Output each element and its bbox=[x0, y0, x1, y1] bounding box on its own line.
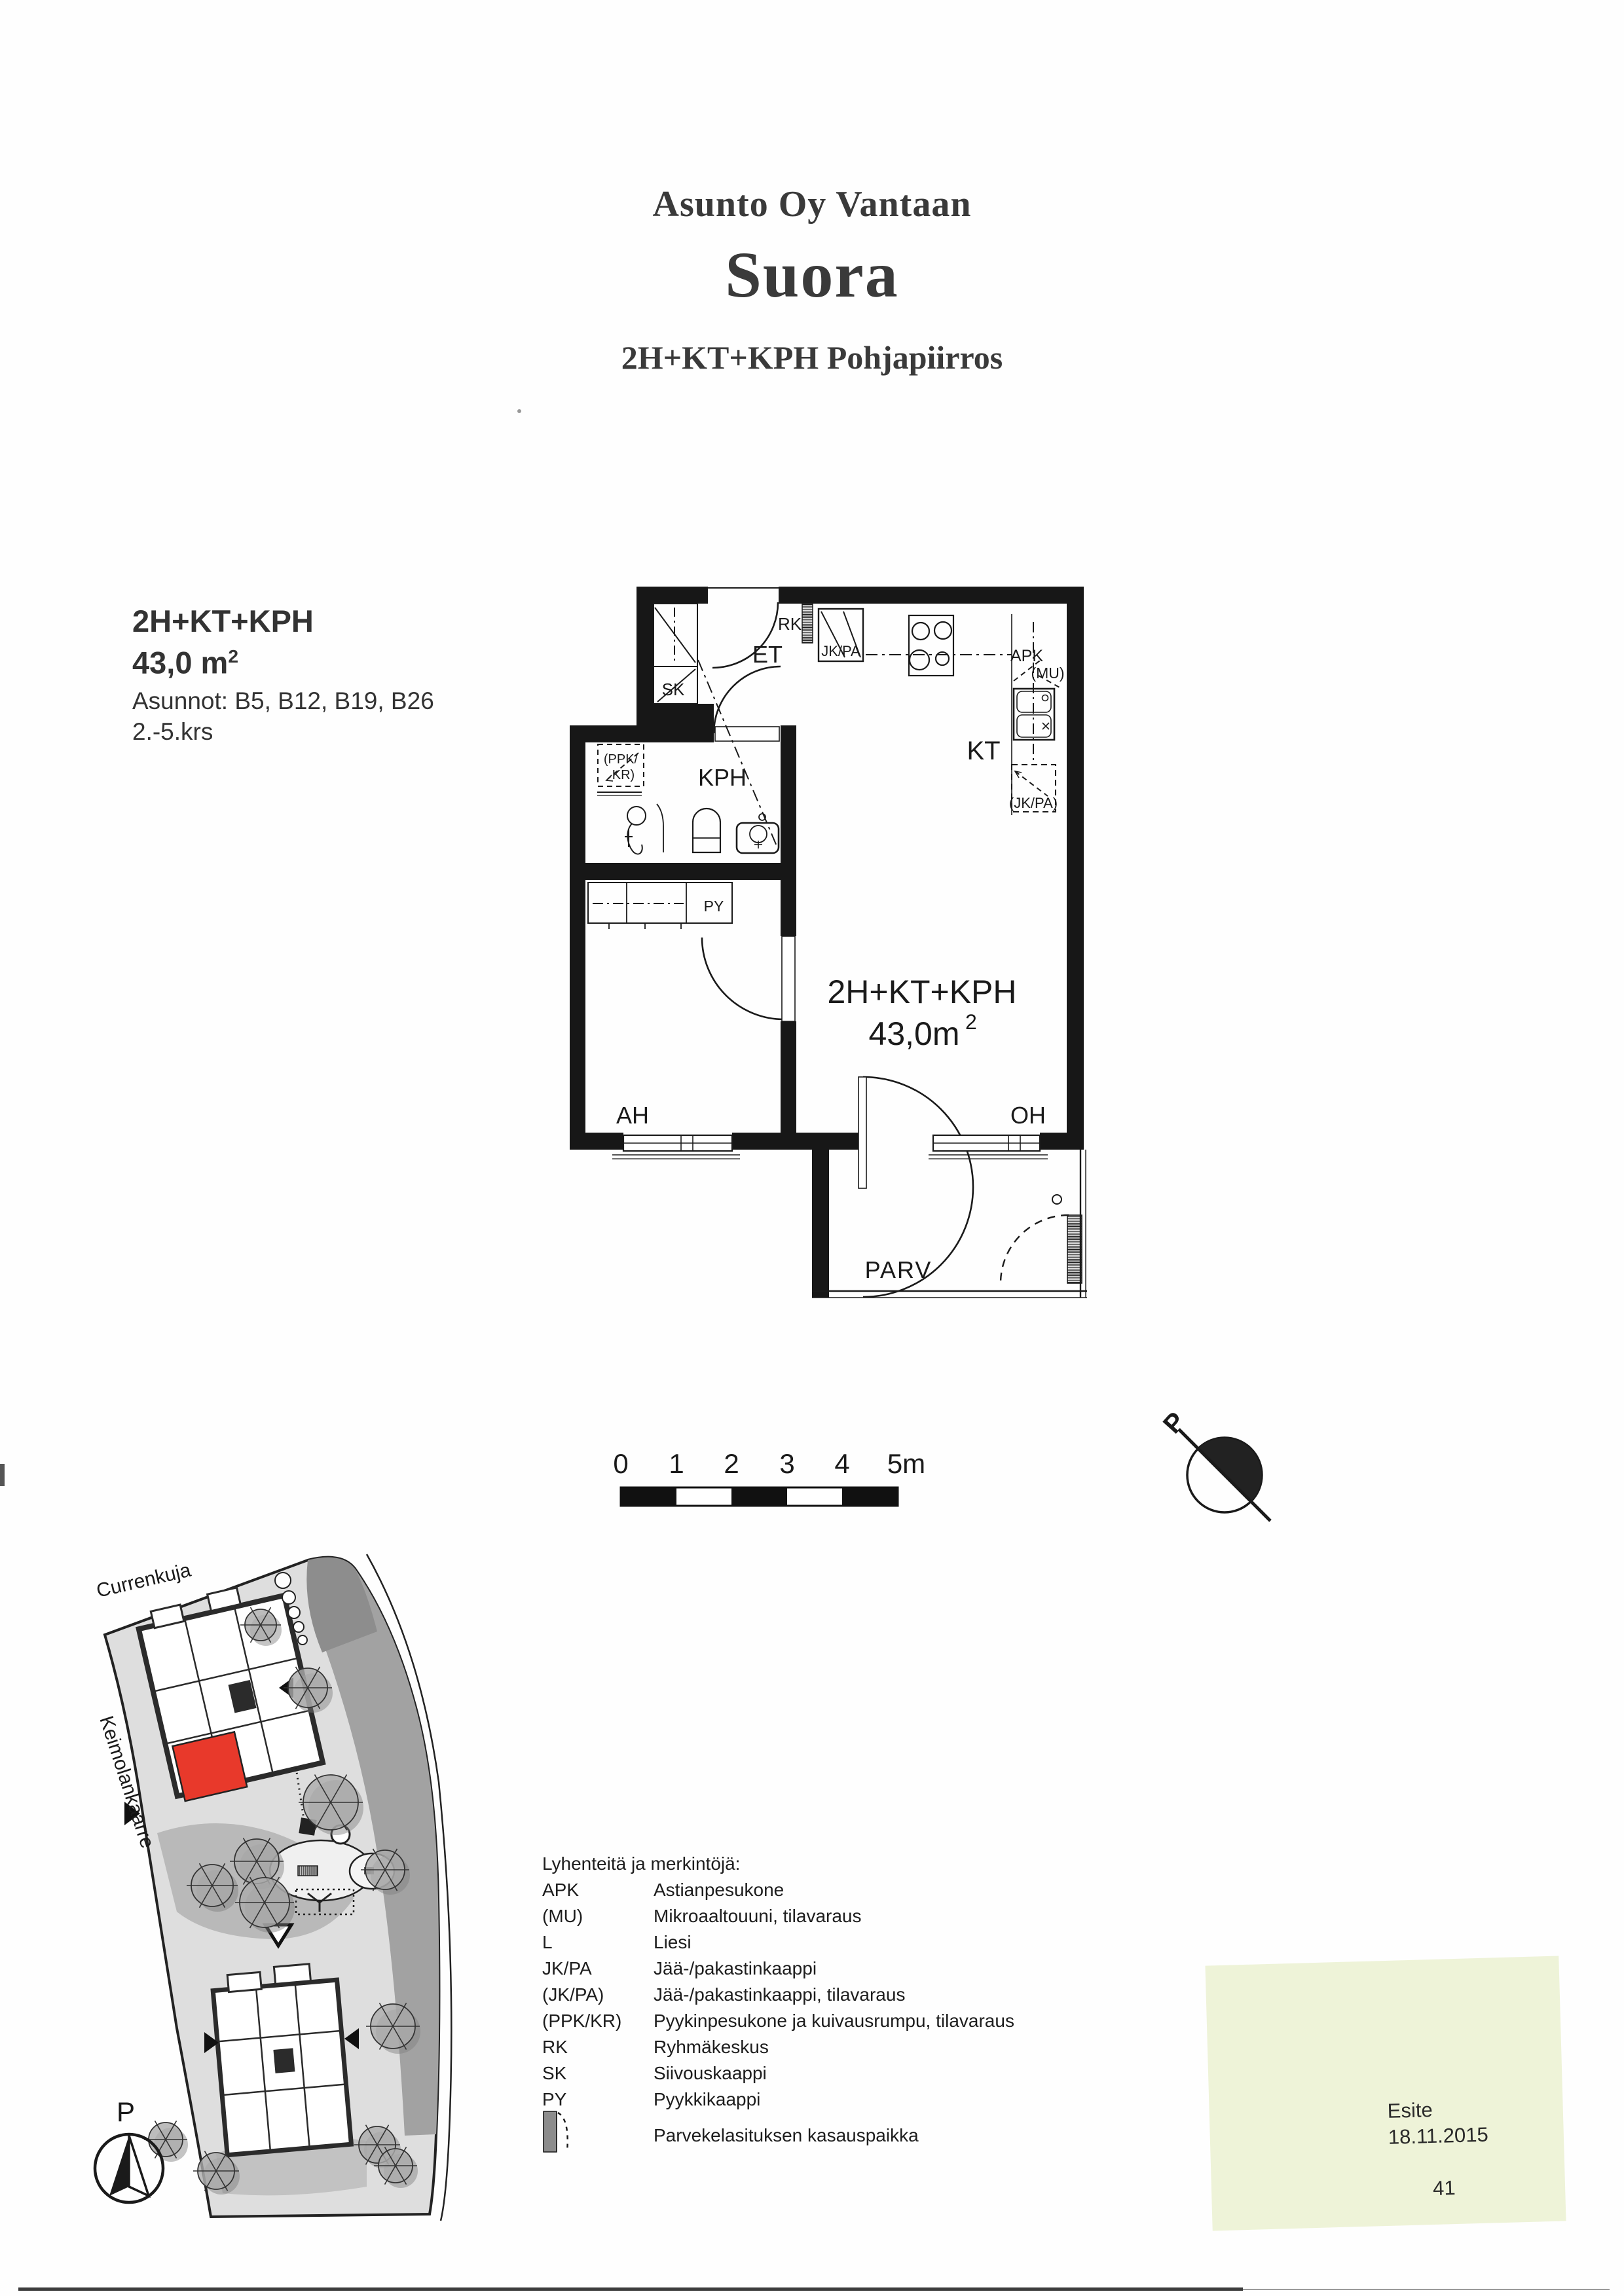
legend-abbr: JK/PA bbox=[542, 1956, 654, 1982]
legend-desc: Parvekelasituksen kasauspaikka bbox=[654, 2123, 1014, 2149]
plan-type-title: 2H+KT+KPH Pohjapiirros bbox=[419, 338, 1205, 376]
label-apk: APK bbox=[1010, 647, 1043, 665]
date-note: Esite 18.11.2015 41 bbox=[1205, 1956, 1566, 2231]
unit-area: 43,0 m2 bbox=[132, 647, 434, 678]
scan-mark-left bbox=[0, 1464, 5, 1486]
legend-row: Parvekelasituksen kasauspaikka bbox=[542, 2113, 1014, 2159]
area-label-type: 2H+KT+KPH bbox=[827, 974, 1016, 1010]
legend-row: (MU)Mikroaaltouuni, tilavaraus bbox=[542, 1903, 1014, 1929]
unit-info-block: 2H+KT+KPH 43,0 m2 Asunnot: B5, B12, B19,… bbox=[132, 606, 434, 750]
scan-line-bottom-faint bbox=[1243, 2289, 1610, 2290]
legend-desc: Ryhmäkeskus bbox=[654, 2034, 1014, 2060]
note-doc-type: Esite bbox=[1387, 2098, 1433, 2123]
room-label-kt: KT bbox=[967, 737, 1000, 765]
legend-row: PYPyykkikaappi bbox=[542, 2086, 1014, 2113]
legend-abbr: SK bbox=[542, 2060, 654, 2086]
balcony bbox=[812, 1150, 1087, 1298]
site-plan: Currenkuja Keimolankaarre P bbox=[79, 1532, 471, 2291]
legend-row: LLiesi bbox=[542, 1929, 1014, 1956]
ah-door-leaf bbox=[782, 936, 795, 1021]
label-ppk-kr-2: KR) bbox=[612, 768, 635, 782]
legend-desc: Jää-/pakastinkaappi bbox=[654, 1956, 1014, 1982]
legend: Lyhenteitä ja merkintöjä: APKAstianpesuk… bbox=[542, 1850, 1014, 2159]
legend-row: (PPK/KR)Pyykinpesukone ja kuivausrumpu, … bbox=[542, 2008, 1014, 2034]
site-compass-label: P bbox=[117, 2096, 135, 2127]
glazing-stack-symbol bbox=[1067, 1215, 1082, 1283]
legend-desc: Pyykkikaappi bbox=[654, 2086, 1014, 2113]
legend-symbol-cell bbox=[542, 2110, 654, 2162]
room-label-ah: AH bbox=[616, 1102, 649, 1129]
apartment-area-label: 2H+KT+KPH 43,0m 2 bbox=[827, 974, 1016, 1052]
legend-abbr: (JK/PA) bbox=[542, 1982, 654, 2008]
legend-row: (JK/PA)Jää-/pakastinkaappi, tilavaraus bbox=[542, 1982, 1014, 2008]
scan-line-bottom bbox=[18, 2287, 1243, 2291]
scale-tick-3: 3 bbox=[779, 1448, 794, 1479]
floor-plan: ET SK RK JK/PA KT APK (MU) (JK/PA) KPH (… bbox=[563, 576, 1094, 1309]
title-block: Asunto Oy Vantaan Suora 2H+KT+KPH Pohjap… bbox=[419, 183, 1205, 376]
room-label-kph: KPH bbox=[698, 764, 747, 791]
legend-abbr: (PPK/KR) bbox=[542, 2008, 654, 2034]
label-jkpa-reserve: (JK/PA) bbox=[1009, 795, 1058, 811]
scale-tick-5: 5m bbox=[887, 1448, 925, 1479]
legend-abbr: (MU) bbox=[542, 1903, 654, 1929]
unit-floors: 2.-5.krs bbox=[132, 720, 434, 744]
legend-title: Lyhenteitä ja merkintöjä: bbox=[542, 1850, 1014, 1877]
room-label-jkpa: JK/PA bbox=[821, 643, 860, 659]
room-label-sk: SK bbox=[662, 680, 685, 699]
legend-desc: Mikroaaltouuni, tilavaraus bbox=[654, 1903, 1014, 1929]
legend-desc: Jää-/pakastinkaappi, tilavaraus bbox=[654, 1982, 1014, 2008]
kph-door-leaf bbox=[715, 727, 779, 741]
project-name: Suora bbox=[419, 237, 1205, 312]
room-label-oh: OH bbox=[1010, 1102, 1046, 1129]
room-label-et: ET bbox=[752, 641, 783, 668]
rk-panel bbox=[802, 604, 813, 643]
unit-type: 2H+KT+KPH bbox=[132, 606, 434, 636]
legend-desc: Siivouskaappi bbox=[654, 2060, 1014, 2086]
door-arcs bbox=[702, 602, 973, 1297]
scale-bar-segments bbox=[621, 1487, 898, 1506]
legend-row: SKSiivouskaappi bbox=[542, 2060, 1014, 2086]
legend-desc: Pyykinpesukone ja kuivausrumpu, tilavara… bbox=[654, 2008, 1014, 2034]
legend-desc: Astianpesukone bbox=[654, 1877, 1014, 1903]
area-label-value: 43,0m bbox=[869, 1015, 960, 1052]
building-b bbox=[212, 1961, 352, 2155]
scale-tick-1: 1 bbox=[669, 1448, 684, 1479]
unit-apartments: Asunnot: B5, B12, B19, B26 bbox=[132, 689, 434, 713]
scan-dot bbox=[517, 409, 521, 413]
balcony-door-leaf bbox=[858, 1077, 866, 1188]
scale-bar: 0 1 2 3 4 5m bbox=[602, 1440, 930, 1519]
room-label-parv: PARV bbox=[865, 1256, 932, 1283]
legend-abbr: RK bbox=[542, 2034, 654, 2060]
scale-ticks: 0 1 2 3 4 5m bbox=[613, 1448, 925, 1479]
scale-tick-0: 0 bbox=[613, 1448, 628, 1479]
kitchen-fixtures bbox=[819, 609, 1060, 815]
legend-row: JK/PAJää-/pakastinkaappi bbox=[542, 1956, 1014, 1982]
north-arrow: P bbox=[1153, 1401, 1283, 1532]
brochure-page: Asunto Oy Vantaan Suora 2H+KT+KPH Pohjap… bbox=[0, 0, 1624, 2296]
balcony-glazing-symbol bbox=[542, 2110, 571, 2155]
legend-abbr: L bbox=[542, 1929, 654, 1956]
label-mu: (MU) bbox=[1031, 665, 1064, 682]
legend-row: RKRyhmäkeskus bbox=[542, 2034, 1014, 2060]
legend-abbr: APK bbox=[542, 1877, 654, 1903]
entry-opening bbox=[707, 587, 779, 604]
street-label-currenkuja: Currenkuja bbox=[94, 1559, 193, 1602]
room-label-py: PY bbox=[704, 898, 724, 915]
room-label-rk: RK bbox=[778, 614, 802, 634]
scale-tick-2: 2 bbox=[724, 1448, 739, 1479]
scale-tick-4: 4 bbox=[834, 1448, 849, 1479]
area-label-sup: 2 bbox=[965, 1010, 977, 1034]
walls bbox=[570, 587, 1084, 1298]
note-date: 18.11.2015 bbox=[1388, 2123, 1488, 2149]
north-half-fill bbox=[1198, 1438, 1262, 1502]
legend-row: APKAstianpesukone bbox=[542, 1877, 1014, 1903]
legend-desc: Liesi bbox=[654, 1929, 1014, 1956]
page-number: 41 bbox=[1433, 2176, 1456, 2200]
label-ppk-kr-1: (PPK/ bbox=[604, 752, 638, 767]
legend-abbr: PY bbox=[542, 2086, 654, 2113]
company-name: Asunto Oy Vantaan bbox=[419, 183, 1205, 225]
